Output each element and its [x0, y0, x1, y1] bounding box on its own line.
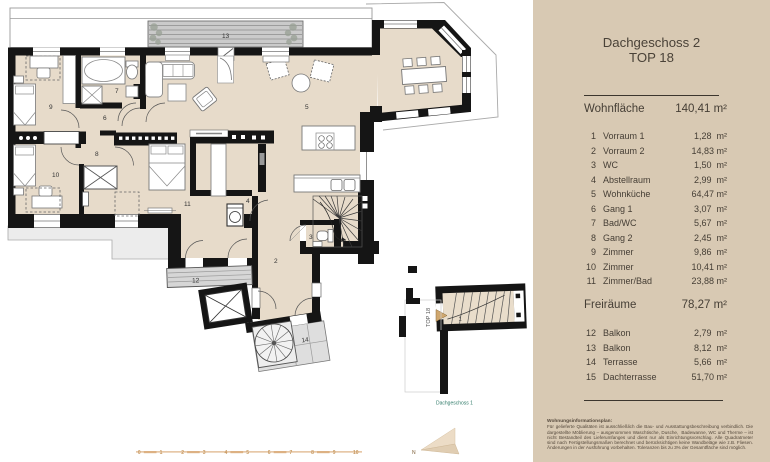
svg-text:2: 2 [181, 450, 184, 456]
svg-text:5: 5 [305, 104, 309, 111]
svg-text:13: 13 [222, 33, 230, 40]
svg-text:5: 5 [246, 450, 249, 456]
svg-text:2: 2 [274, 258, 278, 265]
svg-text:N: N [412, 450, 416, 456]
svg-text:1: 1 [160, 450, 163, 456]
svg-text:7: 7 [290, 450, 293, 456]
svg-text:14: 14 [301, 336, 310, 344]
svg-text:10: 10 [52, 172, 60, 179]
svg-text:Dachgeschoss 1: Dachgeschoss 1 [436, 401, 473, 407]
svg-text:4: 4 [225, 450, 228, 456]
svg-text:3: 3 [203, 450, 206, 456]
svg-text:0: 0 [138, 450, 141, 456]
svg-text:12: 12 [192, 277, 200, 284]
svg-text:3: 3 [309, 234, 313, 241]
svg-text:8: 8 [95, 151, 99, 158]
svg-text:9: 9 [49, 104, 53, 111]
svg-text:4: 4 [246, 198, 250, 205]
svg-text:10: 10 [353, 450, 359, 456]
svg-text:6: 6 [268, 450, 271, 456]
svg-text:TOP 18: TOP 18 [426, 308, 432, 327]
svg-text:7: 7 [115, 88, 119, 95]
svg-text:6: 6 [103, 115, 107, 122]
svg-text:8: 8 [311, 450, 314, 456]
svg-text:9: 9 [333, 450, 336, 456]
svg-text:11: 11 [184, 201, 191, 208]
